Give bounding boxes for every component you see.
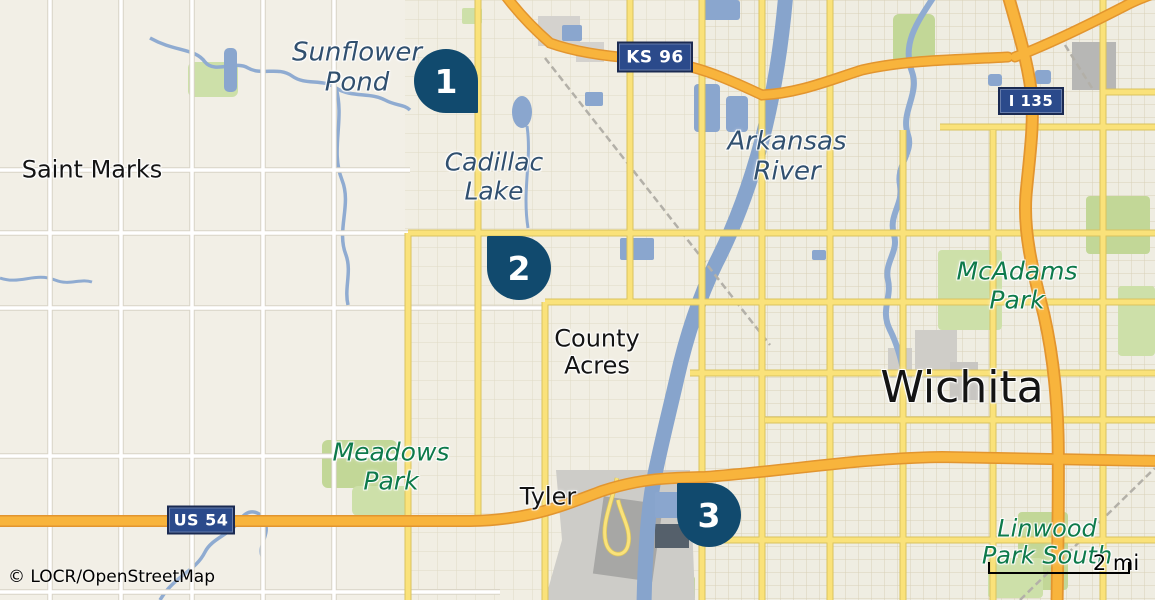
route-shield-i-135: I 135	[998, 87, 1064, 115]
map-pin-2[interactable]: 2	[487, 236, 551, 300]
place-label-saint-marks: Saint Marks	[22, 156, 163, 183]
map-attribution: © LOCR/OpenStreetMap	[8, 567, 215, 587]
place-label-tyler: Tyler	[520, 483, 576, 510]
park-label-mcadams-park: McAdams Park	[957, 258, 1078, 315]
water-label-arkansas-river: Arkansas River	[728, 127, 847, 186]
map-pin-2-number: 2	[508, 249, 531, 288]
place-label-county-acres: County Acres	[554, 326, 639, 381]
route-shield-us-54: US 54	[167, 506, 235, 535]
water-label-sunflower-pond: Sunflower Pond	[292, 38, 422, 97]
route-shield-us-54-label: US 54	[174, 511, 229, 530]
route-shield-i-135-label: I 135	[1009, 92, 1054, 110]
scale-bar	[988, 562, 1130, 574]
route-shield-ks-96-label: KS 96	[626, 47, 684, 67]
water-label-cadillac-lake: Cadillac Lake	[445, 149, 544, 206]
map-pin-1-number: 1	[435, 62, 458, 101]
park-label-meadows-park: Meadows Park	[333, 439, 450, 496]
map-pin-3[interactable]: 3	[677, 483, 741, 547]
route-shield-ks-96: KS 96	[617, 42, 693, 73]
map[interactable]: Sunflower Pond Saint Marks Cadillac Lake…	[0, 0, 1155, 600]
map-pin-3-number: 3	[698, 496, 721, 535]
place-label-wichita: Wichita	[880, 363, 1043, 413]
map-pin-1[interactable]: 1	[414, 49, 478, 113]
